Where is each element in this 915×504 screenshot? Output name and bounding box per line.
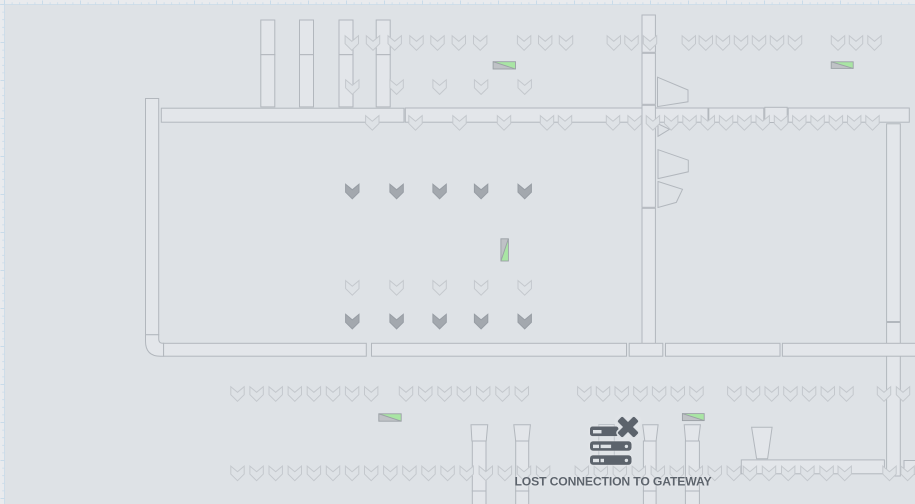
svg-text:LOST CONNECTION TO GATEWAY: LOST CONNECTION TO GATEWAY (515, 475, 712, 489)
